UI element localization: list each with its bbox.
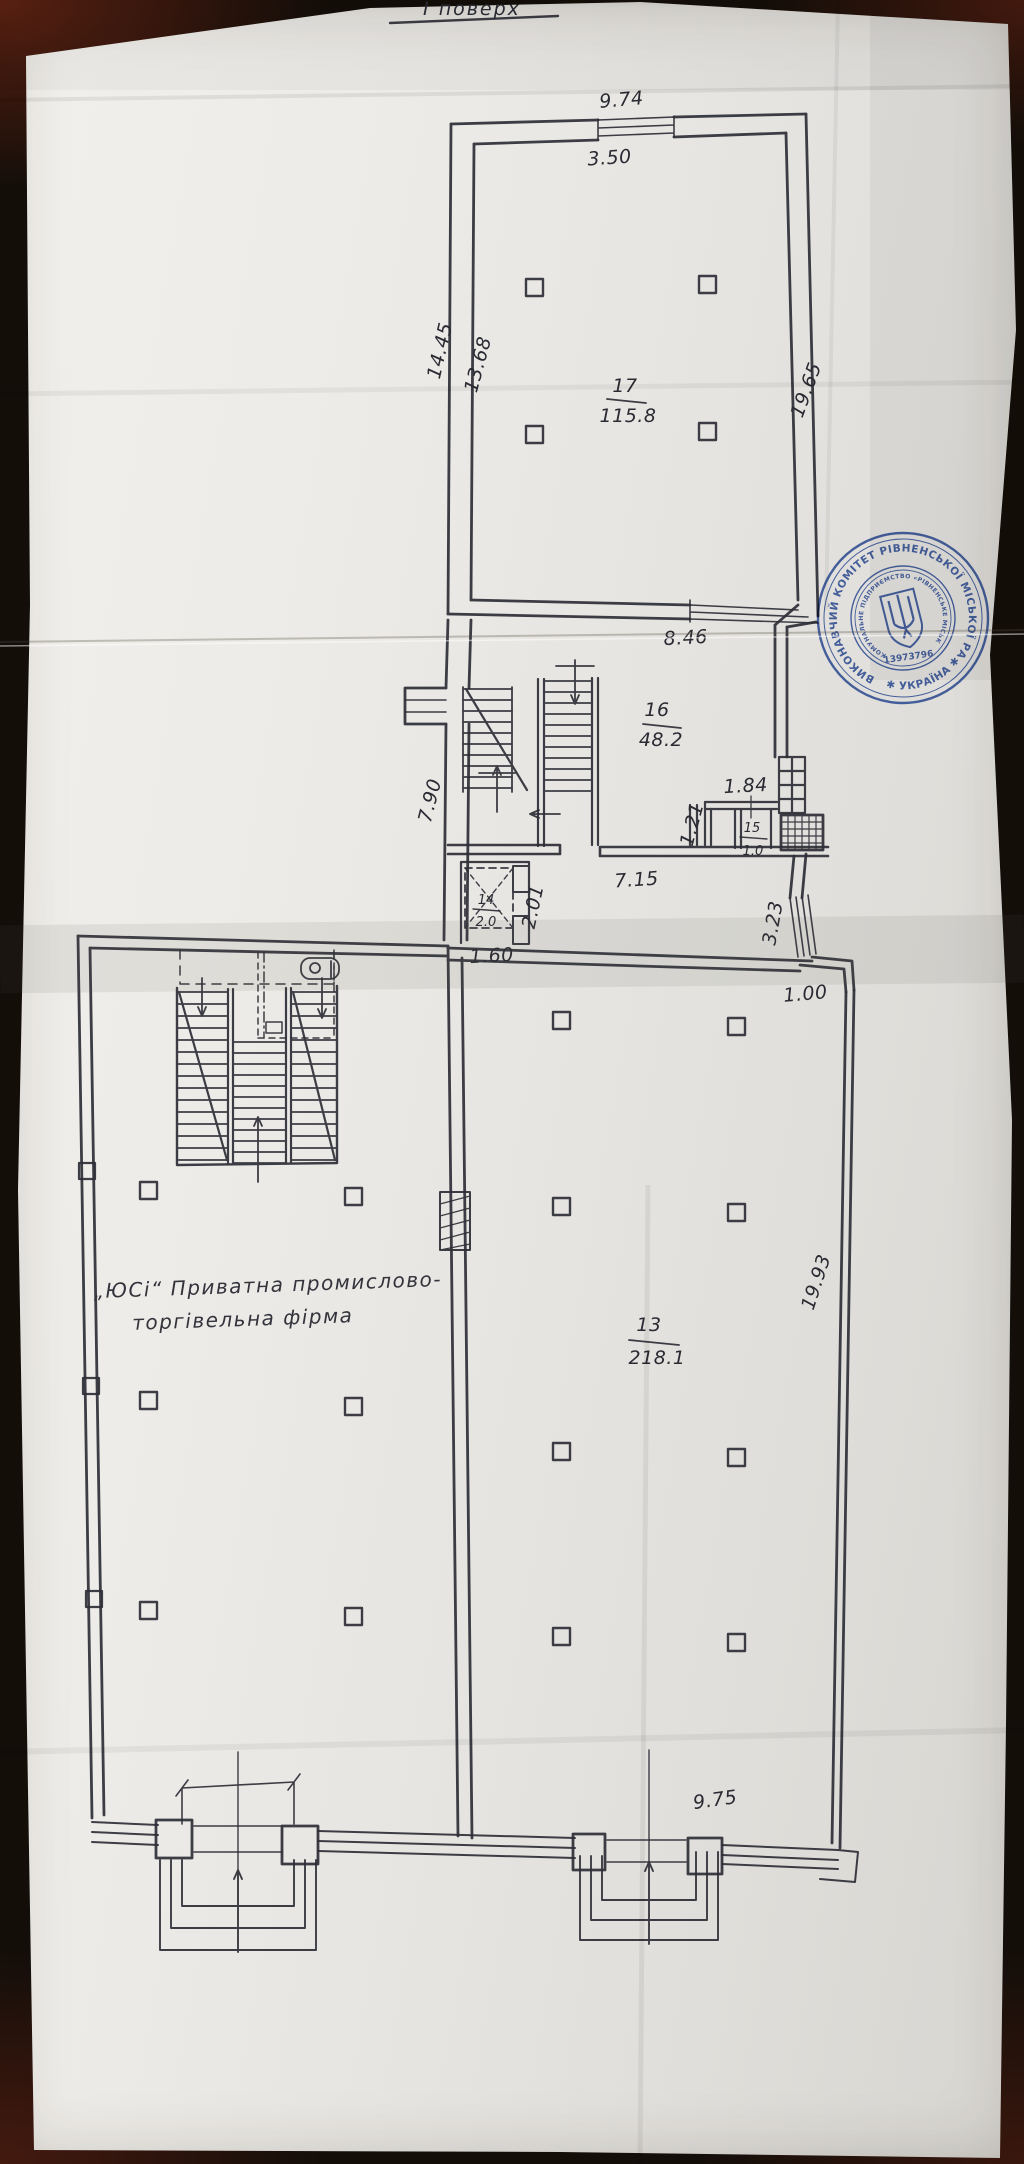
room-15-area: 1.0 xyxy=(743,844,764,859)
floor-plan-drawing: І поверх 9.74 3.50 14.45 13.68 19.65 8.4… xyxy=(0,0,1024,2164)
room-17-windows xyxy=(598,116,818,623)
dim-top-window: 3.50 xyxy=(587,145,633,170)
entrance-steps-left xyxy=(160,1752,316,1952)
dim-mid-left: 7.90 xyxy=(414,776,446,824)
dim-left-outer: 14.45 xyxy=(423,320,457,380)
room-17-walls xyxy=(448,114,818,619)
room-15-number: 15 xyxy=(744,821,761,836)
room-13-area: 218.1 xyxy=(629,1347,686,1369)
main-staircase xyxy=(177,978,337,1182)
entrance-steps-right xyxy=(580,1750,718,1944)
halls-outer-walls xyxy=(78,936,854,1848)
dim-hall-bottom: 9.75 xyxy=(692,1786,739,1814)
room-16-label: 16 48.2 xyxy=(639,699,683,751)
room-17-label: 17 115.8 xyxy=(600,375,657,427)
plan-labels: І поверх 9.74 3.50 14.45 13.68 19.65 8.4… xyxy=(93,0,835,1814)
room-15-label: 15 1.0 xyxy=(740,821,767,859)
dim-corridor-width: 7.15 xyxy=(614,867,660,892)
room-16-number: 16 xyxy=(644,699,669,721)
paper-creases xyxy=(0,0,1024,2164)
mid-left-window xyxy=(405,700,446,712)
owner-annotation-line1: „ЮСі“ Приватна промислово- xyxy=(93,1267,442,1303)
dim-niche-depth: 1.21 xyxy=(676,800,709,848)
owner-annotation-line2: торгівельна фірма xyxy=(132,1303,354,1335)
photo-background: І поверх 9.74 3.50 14.45 13.68 19.65 8.4… xyxy=(0,0,1024,2164)
entrance-piers xyxy=(156,1820,722,1874)
mid-section-walls xyxy=(405,605,816,940)
room-16-stairs xyxy=(463,660,598,846)
ladder-symbol xyxy=(779,757,805,813)
elevator-grid-symbol xyxy=(781,815,823,850)
dim-left-inner: 13.68 xyxy=(460,334,496,395)
dim-niche-width: 1.84 xyxy=(723,774,768,798)
room-13-label: 13 218.1 xyxy=(629,1314,686,1369)
room-17-area: 115.8 xyxy=(600,405,657,427)
room-14-number: 14 xyxy=(478,893,495,908)
dim-hall-right: 19.93 xyxy=(797,1252,836,1313)
room-16-area: 48.2 xyxy=(639,729,683,751)
